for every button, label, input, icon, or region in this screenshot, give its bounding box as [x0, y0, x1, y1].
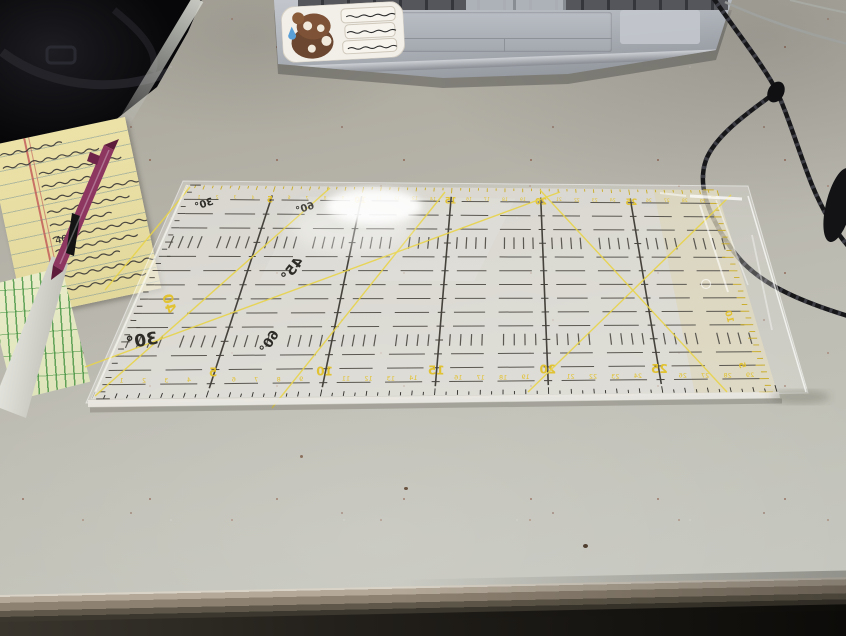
- svg-text:15: 15: [445, 197, 457, 207]
- svg-text:25: 25: [625, 198, 637, 208]
- svg-text:26: 26: [646, 198, 652, 204]
- svg-text:26: 26: [679, 372, 687, 380]
- svg-text:16: 16: [454, 374, 462, 382]
- svg-text:14: 14: [409, 374, 417, 382]
- svg-text:7: 7: [305, 195, 308, 201]
- photo-scene: 40/44: [0, 0, 846, 636]
- svg-text:24: 24: [610, 198, 616, 204]
- svg-text:4: 4: [187, 376, 191, 384]
- svg-text:14: 14: [430, 196, 436, 202]
- svg-text:27: 27: [701, 371, 709, 379]
- svg-text:6: 6: [232, 376, 236, 384]
- svg-text:16: 16: [466, 197, 472, 203]
- svg-text:22: 22: [574, 197, 580, 203]
- svg-text:24: 24: [634, 372, 642, 380]
- svg-text:13: 13: [387, 374, 395, 382]
- svg-text:1: 1: [120, 377, 124, 385]
- svg-text:8: 8: [277, 375, 281, 383]
- svg-text:6: 6: [287, 195, 290, 201]
- svg-text:2: 2: [142, 377, 146, 385]
- svg-text:17: 17: [477, 373, 485, 381]
- svg-text:10: 10: [316, 365, 333, 379]
- svg-text:18: 18: [502, 197, 508, 203]
- svg-text:23: 23: [611, 372, 619, 380]
- svg-text:20: 20: [539, 363, 556, 377]
- svg-text:15: 15: [428, 364, 445, 378]
- svg-text:9: 9: [299, 375, 303, 383]
- svg-text:21: 21: [556, 197, 562, 203]
- svg-text:3: 3: [234, 195, 237, 201]
- svg-text:8: 8: [323, 195, 326, 201]
- svg-text:25: 25: [651, 362, 668, 376]
- crumb: [300, 455, 303, 458]
- svg-text:29: 29: [746, 371, 754, 379]
- svg-text:4: 4: [251, 195, 254, 201]
- quilting-ruler: 1234567891011121314151617181920212223242…: [0, 0, 846, 636]
- svg-text:22: 22: [589, 372, 597, 380]
- svg-text:7: 7: [254, 376, 258, 384]
- svg-text:19: 19: [520, 197, 526, 203]
- svg-text:27: 27: [664, 198, 670, 204]
- svg-text:17: 17: [484, 197, 490, 203]
- svg-text:21: 21: [566, 373, 574, 381]
- svg-text:28: 28: [723, 371, 731, 379]
- svg-text:28: 28: [682, 198, 688, 204]
- svg-text:3: 3: [164, 376, 168, 384]
- svg-text:5: 5: [209, 366, 217, 380]
- svg-text:12: 12: [364, 375, 372, 383]
- svg-text:19: 19: [521, 373, 529, 381]
- crumb: [583, 544, 588, 548]
- svg-text:5: 5: [267, 195, 273, 205]
- svg-text:23: 23: [592, 198, 598, 204]
- crumb: [404, 487, 408, 490]
- svg-text:2: 2: [216, 195, 219, 201]
- svg-text:18: 18: [499, 373, 507, 381]
- svg-text:29: 29: [700, 198, 706, 204]
- svg-text:11: 11: [342, 375, 350, 383]
